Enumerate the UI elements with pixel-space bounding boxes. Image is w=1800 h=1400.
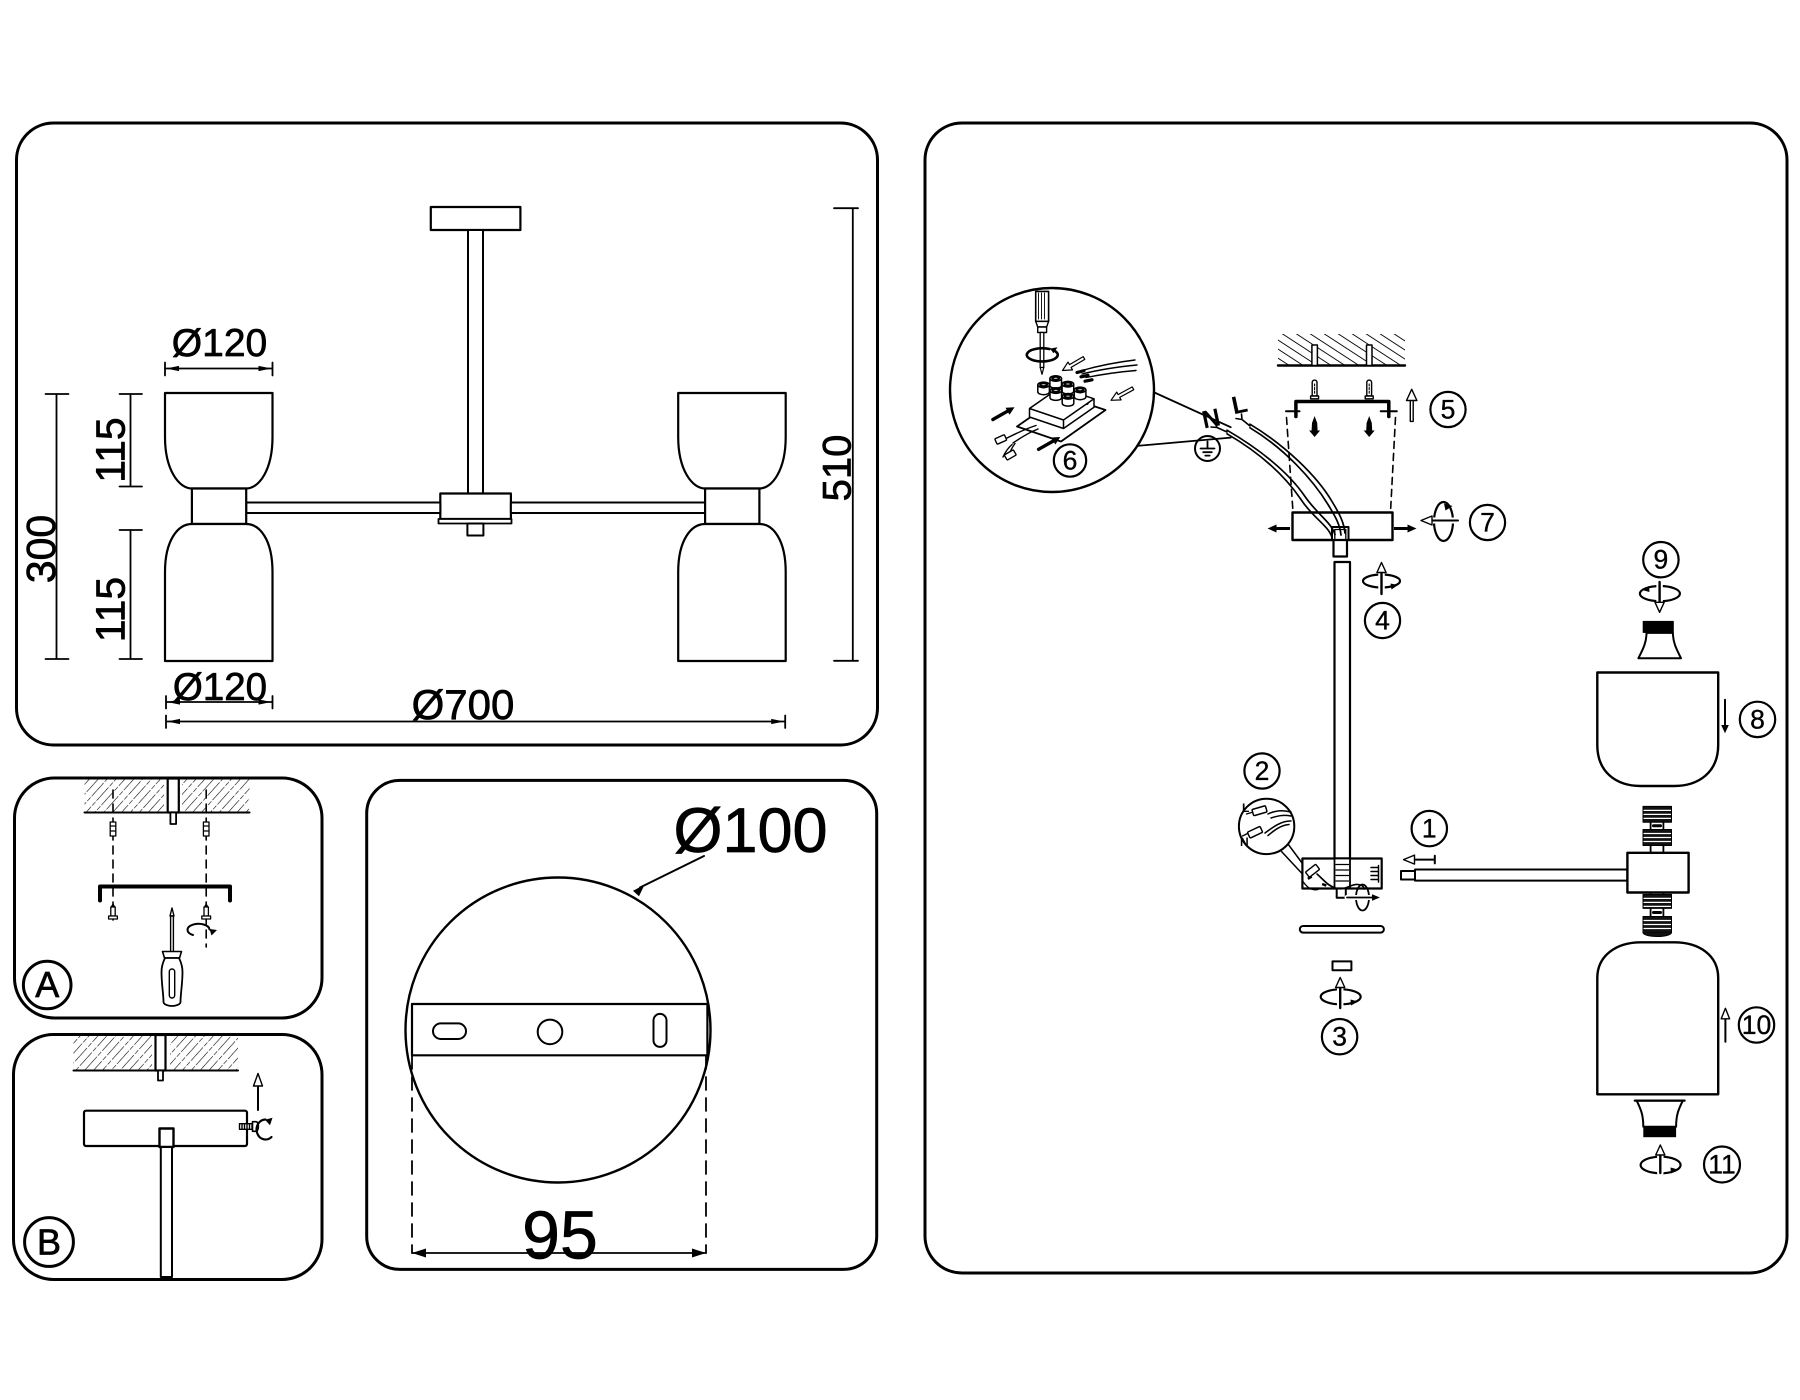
svg-text:7: 7 — [1480, 508, 1495, 538]
svg-text:510: 510 — [816, 435, 860, 502]
svg-text:95: 95 — [522, 1198, 598, 1274]
svg-text:1: 1 — [1422, 814, 1437, 844]
svg-text:Ø120: Ø120 — [173, 666, 267, 709]
svg-text:2: 2 — [1255, 756, 1270, 786]
svg-text:Ø700: Ø700 — [412, 681, 515, 728]
svg-text:115: 115 — [88, 417, 134, 482]
svg-text:6: 6 — [1063, 446, 1078, 476]
svg-text:9: 9 — [1654, 545, 1669, 575]
svg-text:4: 4 — [1375, 606, 1390, 636]
svg-text:3: 3 — [1332, 1022, 1347, 1052]
svg-text:N: N — [1240, 835, 1249, 849]
svg-text:115: 115 — [88, 577, 134, 642]
svg-text:A: A — [35, 964, 59, 1005]
svg-text:10: 10 — [1742, 1010, 1771, 1040]
svg-text:B: B — [37, 1222, 61, 1263]
svg-text:Ø100: Ø100 — [673, 796, 827, 866]
svg-text:8: 8 — [1750, 705, 1765, 735]
svg-text:Ø120: Ø120 — [172, 322, 267, 365]
svg-text:L: L — [1242, 801, 1249, 815]
svg-text:11: 11 — [1708, 1150, 1736, 1180]
svg-text:5: 5 — [1441, 395, 1456, 425]
svg-text:300: 300 — [18, 515, 64, 583]
